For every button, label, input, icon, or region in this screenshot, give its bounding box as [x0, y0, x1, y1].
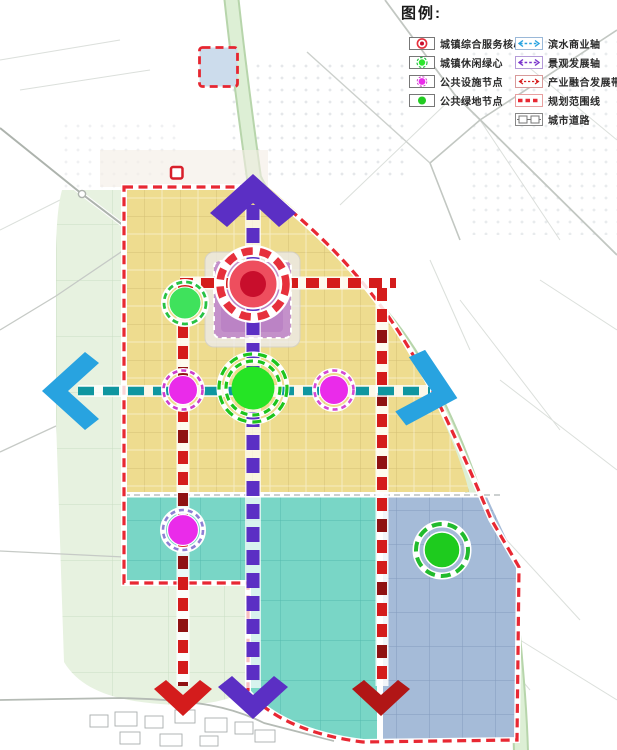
green-space-node [416, 524, 468, 576]
boundary-detached-parcel [200, 48, 238, 87]
legend-item-landscape-axis: 景观发展轴 [515, 53, 615, 72]
industry-belt-icon [515, 75, 543, 88]
legend-label: 滨水商业轴 [548, 36, 601, 51]
legend-title: 图例: [401, 2, 615, 23]
legend-label: 产业融合发展带 [548, 74, 617, 89]
facility-node-1 [164, 371, 203, 410]
core-node [220, 251, 286, 317]
boundary-line-icon [515, 94, 543, 107]
landscape-axis-icon [515, 56, 543, 69]
facility-node-icon [409, 75, 435, 88]
legend-column-nodes: 城镇综合服务核心 城镇休闲绿心 公共设施节点 [409, 34, 515, 110]
legend-label: 景观发展轴 [548, 55, 601, 70]
legend: 图例: 城镇综合服务核心 城镇休闲绿心 [401, 2, 615, 134]
city-road-icon [515, 113, 543, 126]
legend-label: 城市道路 [548, 112, 590, 127]
legend-label: 规划范围线 [548, 93, 601, 108]
core-node-icon [409, 37, 435, 50]
waterfront-axis-icon [515, 37, 543, 50]
legend-label: 城镇综合服务核心 [440, 36, 524, 51]
green-space-icon [409, 94, 435, 107]
legend-label: 城镇休闲绿心 [440, 55, 503, 70]
facility-node-2 [315, 371, 354, 410]
facility-node-3 [163, 510, 203, 550]
leisure-green-node-small [164, 282, 206, 324]
legend-item-facility: 公共设施节点 [409, 72, 515, 91]
legend-label: 公共绿地节点 [440, 93, 503, 108]
leisure-green-icon [409, 56, 435, 69]
legend-item-city-road: 城市道路 [515, 110, 615, 129]
legend-label: 公共设施节点 [440, 74, 503, 89]
legend-item-waterfront-axis: 滨水商业轴 [515, 34, 615, 53]
legend-item-green-space: 公共绿地节点 [409, 91, 515, 110]
legend-column-axes: 滨水商业轴 景观发展轴 产业融合发展带 [515, 34, 615, 129]
site-marker-square [171, 167, 183, 179]
legend-item-core: 城镇综合服务核心 [409, 34, 515, 53]
planning-map-page: 图例: 城镇综合服务核心 城镇休闲绿心 [0, 0, 617, 750]
legend-item-leisure-green: 城镇休闲绿心 [409, 53, 515, 72]
legend-item-boundary: 规划范围线 [515, 91, 615, 110]
legend-item-industry-belt: 产业融合发展带 [515, 72, 615, 91]
old-town-strip [100, 150, 268, 187]
